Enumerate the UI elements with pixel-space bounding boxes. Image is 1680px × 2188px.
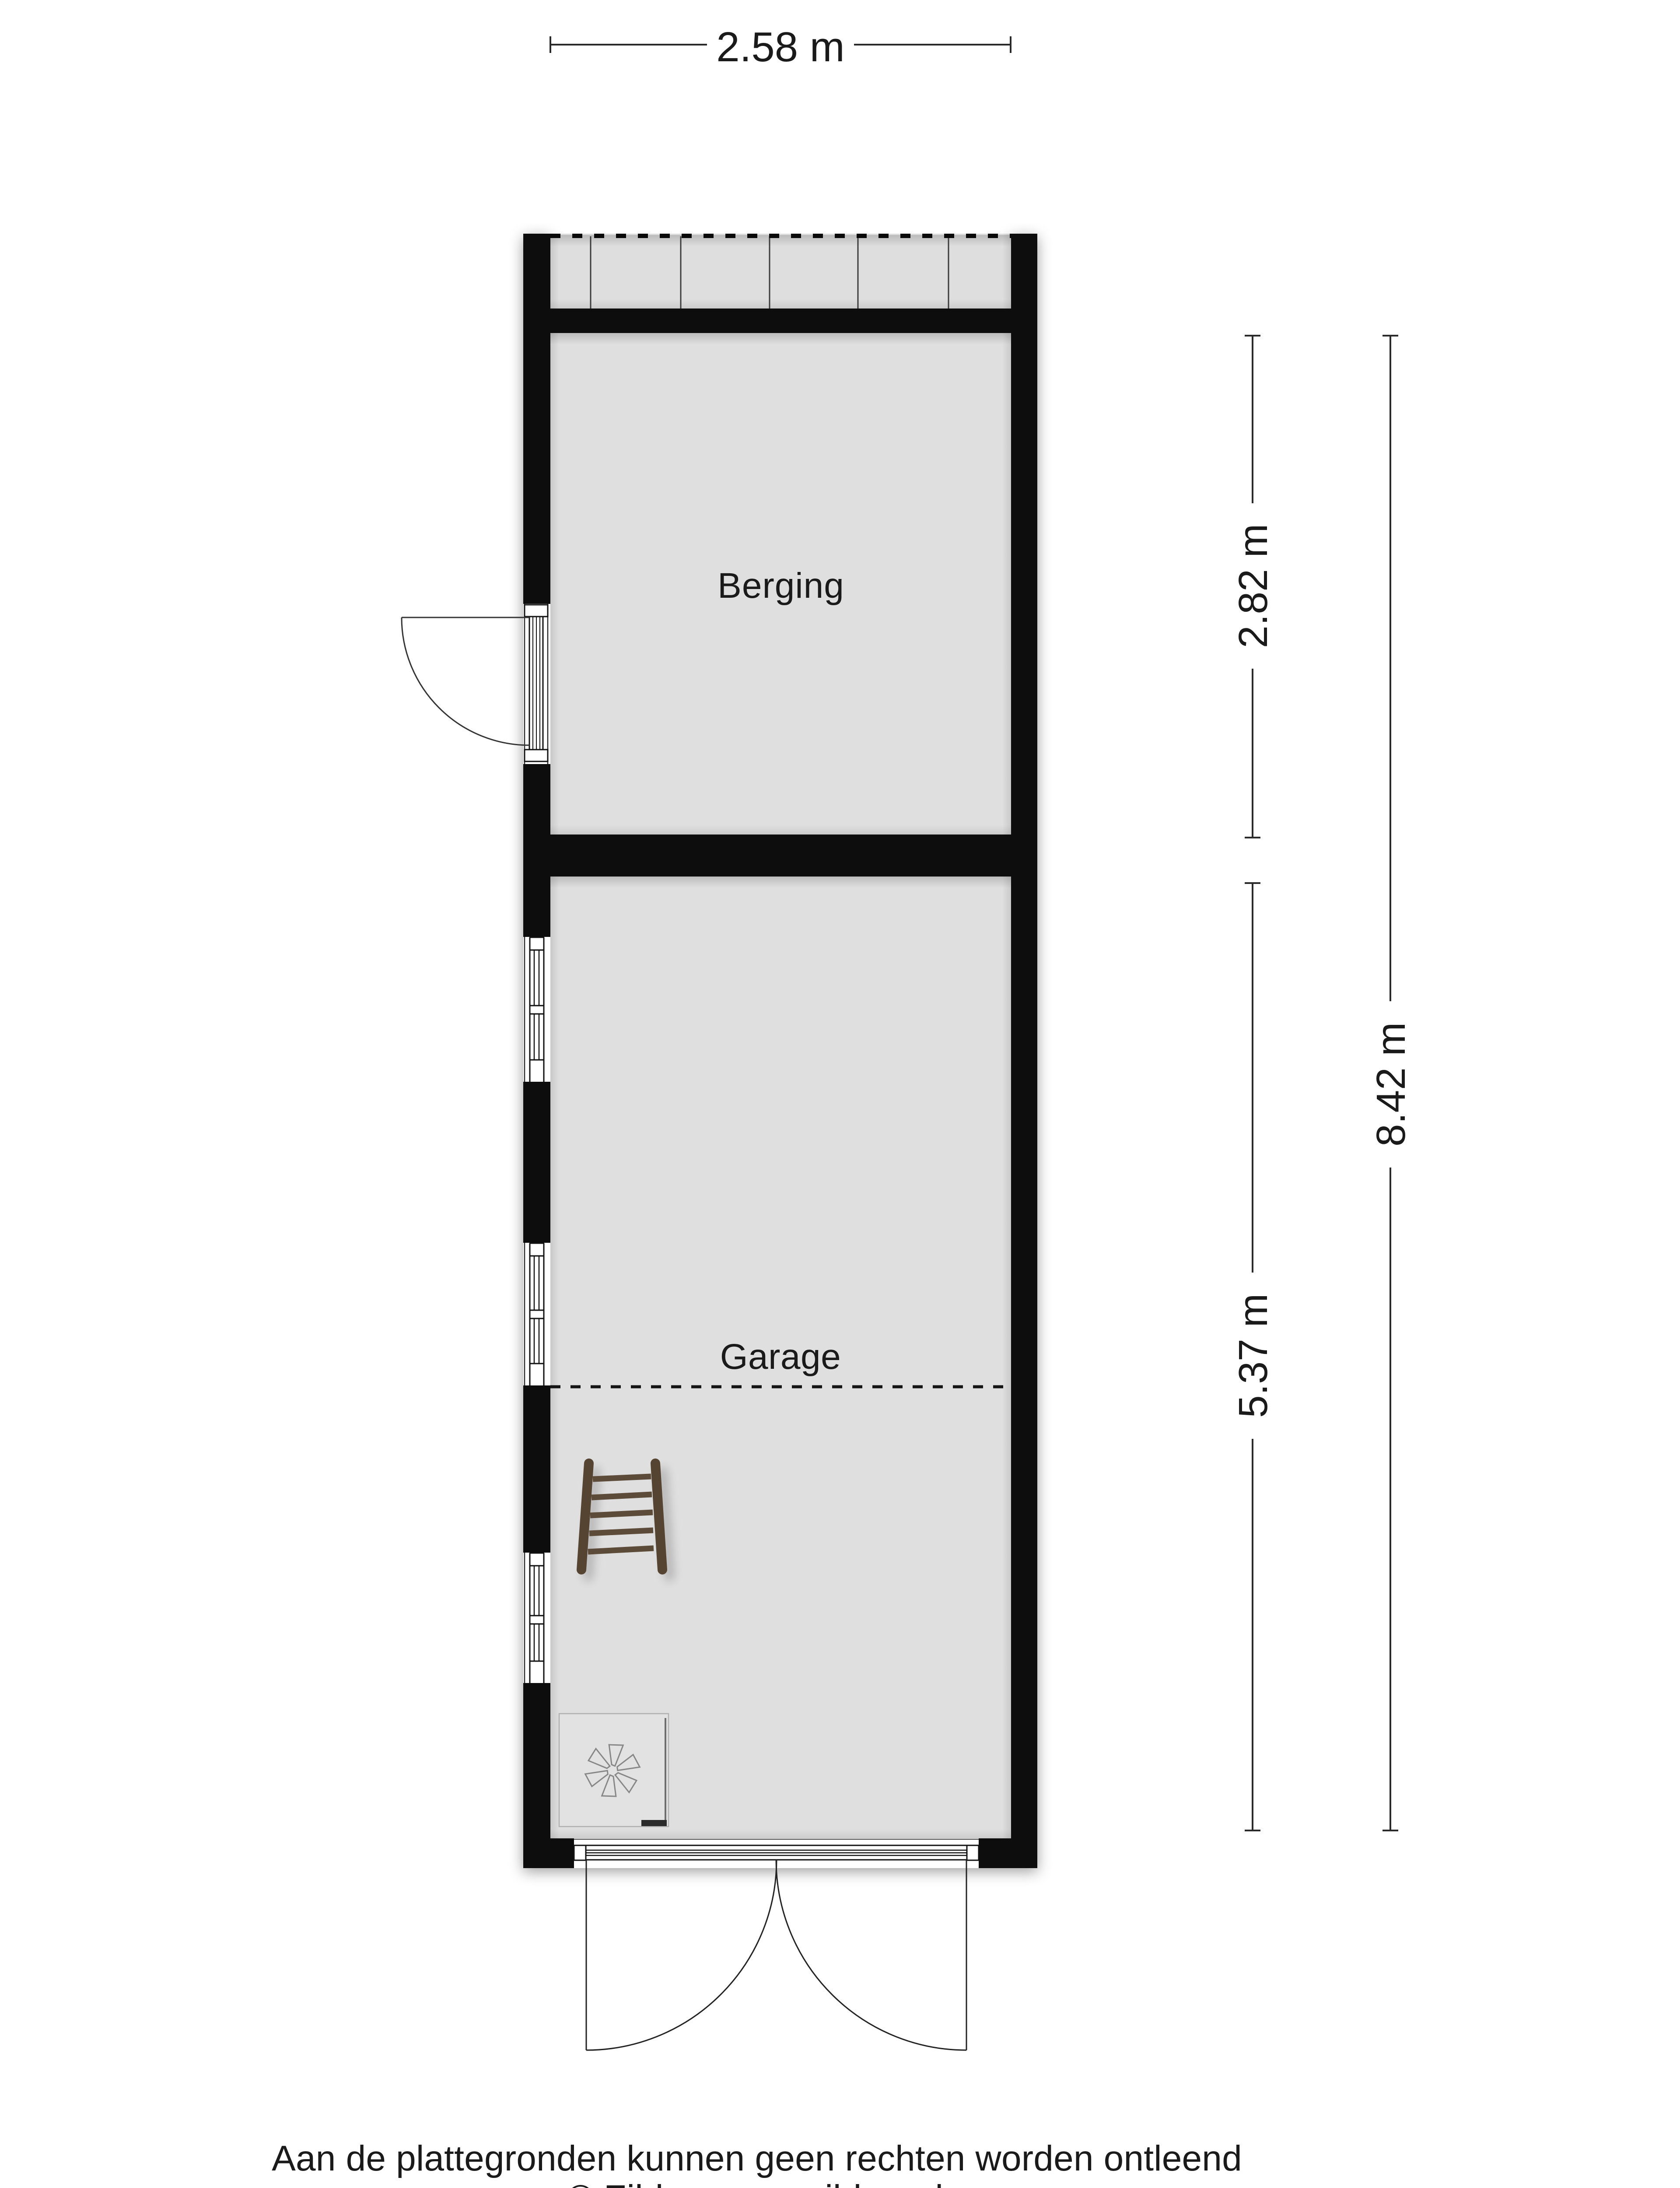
svg-text:Aan de plattegronden kunnen ge: Aan de plattegronden kunnen geen rechten…: [272, 2139, 1242, 2178]
svg-text:2.82 m: 2.82 m: [1230, 524, 1276, 648]
svg-text:8.42 m: 8.42 m: [1368, 1022, 1414, 1147]
svg-text:2.58 m: 2.58 m: [716, 24, 844, 70]
svg-text:© Zibber www.zibber.nl: © Zibber www.zibber.nl: [567, 2177, 943, 2188]
svg-text:Garage: Garage: [720, 1337, 841, 1377]
svg-text:Berging: Berging: [717, 566, 844, 606]
svg-text:5.37 m: 5.37 m: [1230, 1294, 1276, 1418]
